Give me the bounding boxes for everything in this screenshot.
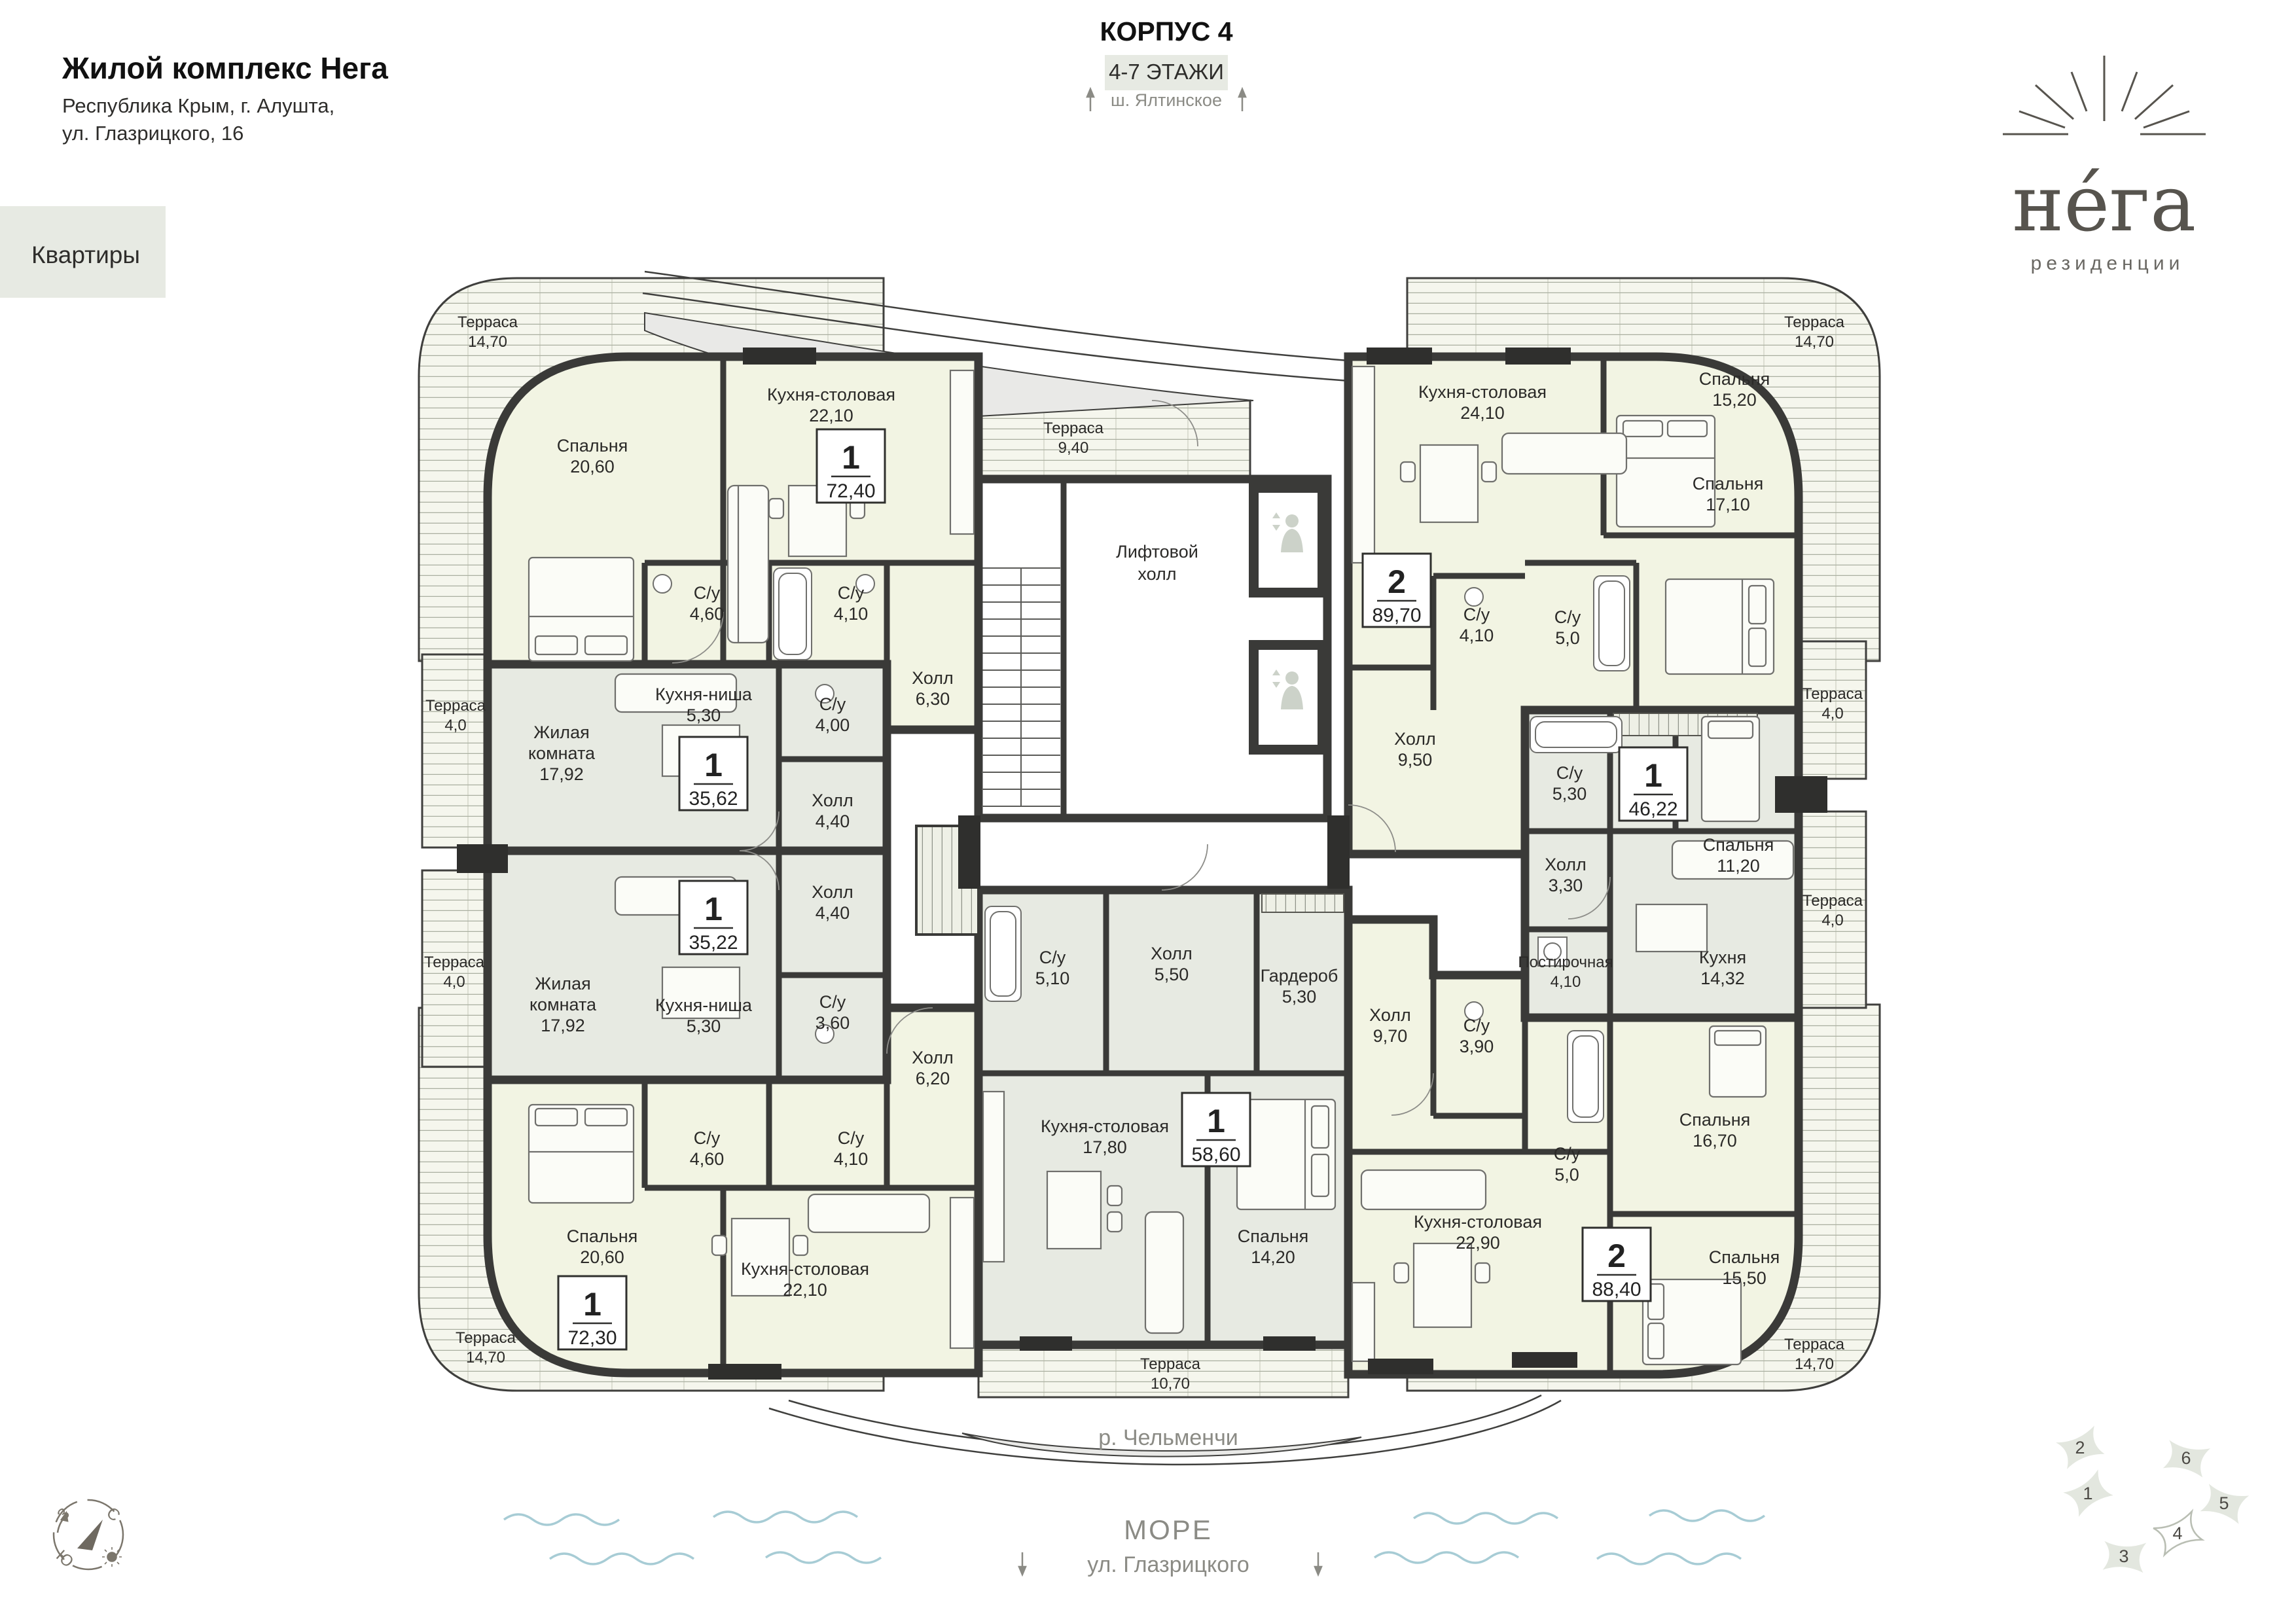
room-label: Спальня (1693, 474, 1764, 493)
apartment-badge[interactable]: 1 46,22 (1619, 747, 1687, 821)
room-area: 16,70 (1693, 1131, 1737, 1150)
terrace-area: 4,0 (1821, 705, 1843, 722)
badge-rooms: 1 (704, 891, 723, 927)
apartment-badge[interactable]: 1 35,62 (679, 737, 747, 810)
terrace-label: Терраса (424, 954, 485, 971)
room-area: 3,60 (816, 1013, 850, 1033)
room-area: 5,30 (687, 1016, 721, 1036)
sofa (728, 486, 768, 643)
badge-rooms: 1 (1644, 757, 1662, 794)
badge-rooms: 1 (1207, 1103, 1225, 1139)
apartments-tab[interactable]: Квартиры (0, 206, 166, 298)
room-label: Холл (912, 668, 954, 688)
terrace-area: 14,70 (1795, 333, 1834, 351)
floors-label: 4-7 ЭТАЖИ (1109, 60, 1224, 84)
badge-rooms: 1 (704, 747, 723, 783)
kitchen-counter (950, 370, 974, 534)
bed (1237, 1099, 1335, 1209)
terrace-area: 10,70 (1151, 1375, 1190, 1393)
room-label: С/у (1554, 1144, 1581, 1164)
terrace-label: Терраса (457, 313, 518, 331)
room-label: Спальня (1238, 1226, 1309, 1246)
bed (1617, 416, 1715, 527)
minimap-building-label: 4 (2172, 1524, 2182, 1543)
room-label: комната (529, 995, 597, 1014)
room-label: Гардероб (1261, 966, 1338, 986)
central-core: Лифтовой холл (978, 479, 1327, 818)
lift-hall-label: холл (1138, 564, 1176, 584)
room-area: 17,92 (541, 1016, 585, 1035)
room-area: 3,30 (1549, 876, 1583, 895)
apartment-badge[interactable]: 2 89,70 (1363, 554, 1431, 627)
room-area: 14,32 (1700, 969, 1745, 988)
river-label: р. Чельменчи (1098, 1425, 1238, 1450)
bathtub (1594, 576, 1630, 671)
room-label: Жилая (533, 722, 589, 742)
minimap-building-4-current[interactable]: 4 (2153, 1512, 2203, 1556)
room-area: 4,10 (1551, 973, 1581, 991)
terrace-label: Терраса (425, 697, 486, 715)
room-area: 6,20 (916, 1069, 950, 1088)
badge-area: 58,60 (1191, 1144, 1240, 1166)
room-area: 6,30 (916, 689, 950, 709)
badge-area: 72,30 (567, 1327, 617, 1349)
bathtub (774, 568, 812, 660)
bed (1710, 1026, 1766, 1097)
room-area: 5,50 (1155, 965, 1189, 984)
minimap-building-2[interactable]: 2 (2055, 1426, 2106, 1470)
terrace-label: Терраса (1784, 1336, 1845, 1353)
room-area: 5,0 (1555, 628, 1580, 648)
room-area: 4,40 (816, 811, 850, 831)
lift-hall-label: Лифтовой (1116, 542, 1198, 562)
apartment-badge[interactable]: 1 35,22 (679, 881, 747, 954)
sofa (808, 1194, 929, 1232)
badge-rooms: 2 (1607, 1238, 1626, 1274)
room-area: 5,30 (1282, 987, 1317, 1007)
room-label: Кухня-ниша (655, 685, 753, 704)
terrace-area: 14,70 (1795, 1355, 1834, 1373)
room-label: Кухня-ниша (655, 995, 753, 1015)
room-label: С/у (1039, 948, 1066, 967)
compass-needle-icon (77, 1520, 103, 1550)
minimap-building-6[interactable]: 6 (2162, 1438, 2210, 1479)
address-line: Республика Крым, г. Алушта, (62, 94, 334, 117)
room-area: 14,20 (1251, 1247, 1295, 1267)
apartments-tab-label: Квартиры (31, 241, 140, 268)
room-label: С/у (694, 1128, 721, 1148)
site-minimap: 2 6 1 5 4 3 (2055, 1426, 2250, 1575)
room-label: Спальня (557, 436, 628, 455)
bed (529, 1105, 634, 1203)
room-area: 15,20 (1712, 390, 1757, 410)
room-area: 11,20 (1717, 856, 1760, 876)
room-label: Кухня-столовая (1418, 382, 1547, 402)
logo-name[interactable]: нéга (2013, 158, 2197, 249)
terrace-label: Терраса (1784, 313, 1845, 331)
room-label: Холл (812, 791, 853, 810)
room-area: 4,60 (690, 604, 725, 624)
room-area: 4,60 (690, 1149, 725, 1169)
address-line: ул. Глазрицкого, 16 (62, 122, 243, 145)
room-area: 4,10 (834, 1149, 869, 1169)
room-area: 17,10 (1706, 495, 1750, 514)
minimap-building-5[interactable]: 5 (2199, 1482, 2250, 1525)
room-area: 5,30 (687, 705, 721, 725)
room-area: 9,70 (1373, 1026, 1408, 1046)
badge-area: 35,22 (689, 932, 738, 954)
room-label: Холл (1369, 1005, 1411, 1025)
room-area: 22,90 (1456, 1233, 1500, 1253)
room-area: 4,10 (834, 604, 869, 624)
page: Лифтовой холл (0, 0, 2296, 1623)
bed (1643, 1279, 1741, 1364)
minimap-building-label: 6 (2181, 1448, 2191, 1468)
badge-area: 35,62 (689, 788, 738, 810)
room-area: 4,00 (816, 715, 850, 735)
header: Жилой комплекс Нега Республика Крым, г. … (0, 16, 1246, 298)
building-title: КОРПУС 4 (1100, 16, 1232, 46)
badge-rooms: 1 (842, 439, 860, 476)
minimap-building-label: 2 (2075, 1438, 2085, 1457)
sofa (1361, 1170, 1486, 1209)
room-area: 17,80 (1083, 1137, 1127, 1157)
room-label: Холл (1151, 944, 1193, 963)
room-area: 4,10 (1460, 626, 1494, 645)
room-label: С/у (819, 992, 846, 1012)
sink (1465, 588, 1483, 606)
room-label: С/у (1463, 1016, 1490, 1035)
room-label: Спальня (1703, 835, 1774, 855)
terrace-area: 14,70 (468, 333, 507, 351)
sofa (1145, 1212, 1183, 1333)
terrace-area: 14,70 (466, 1349, 505, 1366)
kitchen-counter (1352, 1283, 1374, 1361)
sea-label: МОРЕ (1124, 1514, 1213, 1545)
kitchen-counter (1352, 366, 1374, 563)
room-label: комната (528, 743, 596, 763)
terrace-area: 4,0 (443, 973, 465, 991)
badge-area: 72,40 (826, 480, 875, 502)
room-label: Холл (912, 1048, 954, 1067)
bed (529, 558, 634, 661)
badge-rooms: 2 (1388, 563, 1406, 600)
badge-area: 46,22 (1628, 798, 1677, 820)
room-label: Холл (1545, 855, 1587, 874)
minimap-building-3[interactable]: 3 (2102, 1539, 2147, 1574)
room-area: 5,0 (1554, 1165, 1579, 1185)
room-label: Кухня-столовая (1414, 1212, 1542, 1232)
terrace-left-upper (422, 654, 490, 847)
table (1636, 904, 1707, 952)
room-label: С/у (694, 583, 721, 603)
apartment-badge[interactable]: 1 58,60 (1182, 1093, 1250, 1166)
bathtub (1530, 717, 1622, 753)
room-label: С/у (838, 1128, 865, 1148)
page-title: Жилой комплекс Нега (62, 51, 388, 85)
badge-rooms: 1 (583, 1286, 601, 1323)
room-label: Кухня-столовая (767, 385, 895, 404)
room-area: 20,60 (580, 1247, 624, 1267)
room-area: 20,60 (570, 457, 615, 476)
room-label: С/у (1463, 605, 1490, 624)
room-area: 9,50 (1398, 750, 1433, 770)
room-label: Спальня (1679, 1110, 1751, 1130)
room-label: Кухня (1699, 948, 1746, 967)
room-area: 22,10 (809, 406, 853, 425)
compass-sun-icon (102, 1547, 122, 1567)
bathtub (1568, 1031, 1604, 1122)
sofa (1502, 433, 1626, 474)
terrace-area: 9,40 (1058, 439, 1089, 457)
room-area: 5,30 (1552, 784, 1587, 804)
bathtub (985, 906, 1021, 1001)
terrace-area: 4,0 (1821, 912, 1843, 929)
terrace-label: Терраса (456, 1329, 516, 1347)
bed (1702, 717, 1759, 821)
terrace-label: Терраса (1803, 892, 1863, 910)
room-label: Холл (1394, 729, 1436, 749)
terrace-label: Терраса (1803, 685, 1863, 703)
logo-subtitle: резиденции (2031, 253, 2185, 274)
apartment-badge[interactable]: 1 72,40 (817, 429, 885, 503)
badge-area: 88,40 (1592, 1279, 1641, 1300)
terrace-label: Терраса (1140, 1355, 1201, 1373)
room-area: 15,50 (1722, 1268, 1767, 1288)
kitchen-counter (983, 1092, 1004, 1262)
terrace-label: Терраса (1043, 419, 1104, 437)
brand-logo: нéга резиденции (2003, 56, 2206, 274)
room-label: С/у (1554, 607, 1581, 627)
room-label: Спальня (567, 1226, 638, 1246)
room-label: С/у (838, 583, 865, 603)
badge-area: 89,70 (1372, 605, 1421, 626)
sink (653, 575, 672, 593)
minimap-building-label: 1 (2083, 1484, 2092, 1503)
room-label: Постирочная (1518, 954, 1613, 971)
compass-south: Ю (52, 1546, 77, 1571)
room-label: Спальня (1699, 369, 1770, 389)
room-area: 5,10 (1035, 969, 1070, 988)
geo-labels: р. Чельменчи МОРЕ ул. Глазрицкого (504, 1425, 1765, 1577)
terrace-area: 4,0 (444, 717, 466, 734)
apartment-badge[interactable]: 1 72,30 (558, 1276, 626, 1349)
room-area: 24,10 (1460, 403, 1505, 423)
room-label: Спальня (1709, 1247, 1780, 1267)
room-label: Жилая (535, 974, 590, 993)
floors-badge[interactable]: 4-7 ЭТАЖИ (1105, 55, 1228, 90)
direction-label: ш. Ялтинское (1111, 90, 1222, 110)
kitchen-counter (950, 1198, 974, 1348)
compass: З С Ю (52, 1500, 124, 1571)
room-label: Кухня-столовая (741, 1259, 869, 1279)
room-label: Холл (812, 882, 853, 902)
street-label: ул. Глазрицкого (1087, 1552, 1249, 1577)
room-area: 3,90 (1460, 1037, 1494, 1056)
bed (1666, 579, 1774, 674)
room-label: С/у (1556, 763, 1583, 783)
closet-hatch (1262, 894, 1344, 912)
room-label: Кухня-столовая (1041, 1116, 1169, 1136)
apartment-badge[interactable]: 2 88,40 (1583, 1228, 1651, 1301)
minimap-building-label: 5 (2219, 1493, 2229, 1513)
minimap-building-label: 3 (2119, 1546, 2128, 1566)
room-area: 22,10 (783, 1280, 827, 1300)
room-area: 17,92 (539, 764, 584, 784)
minimap-building-1[interactable]: 1 (2062, 1469, 2113, 1518)
terrace-right-lower (1799, 811, 1866, 1008)
room-label: С/у (819, 694, 846, 714)
room-area: 4,40 (816, 903, 850, 923)
sun-rays-icon (2003, 56, 2206, 134)
